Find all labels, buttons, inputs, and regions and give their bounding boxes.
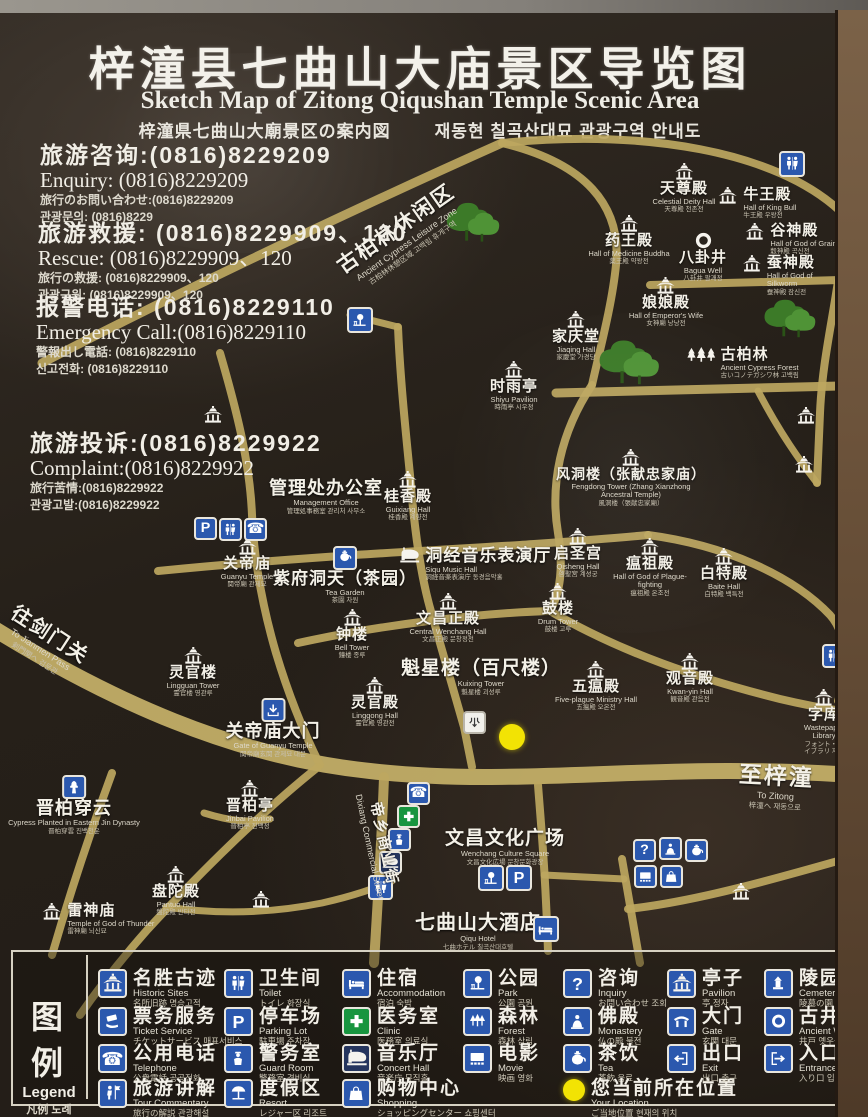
map-poi bbox=[249, 891, 272, 909]
temple-icon bbox=[238, 780, 261, 798]
map-poi: 文昌正殿Central Wenchang Hall文昌正殿 문창정전 bbox=[410, 593, 487, 644]
ring-icon bbox=[693, 231, 712, 250]
temple-icon bbox=[712, 548, 735, 566]
your-location-dot bbox=[499, 724, 525, 750]
clinic-icon bbox=[342, 1007, 371, 1036]
temple-icon bbox=[566, 528, 589, 546]
temple-icon bbox=[743, 223, 766, 241]
shopping-icon bbox=[342, 1079, 371, 1108]
temple-icon bbox=[584, 661, 607, 679]
bed-icon bbox=[533, 916, 559, 942]
map-poi: 八卦井Bagua Well八卦井 팔괘정 bbox=[679, 231, 727, 283]
contact-emergency: 报警电话: (0816)8229110 Emergency Call:(0816… bbox=[36, 295, 335, 377]
legend-item-clinic: 医务室Clinic医務室 의료실 bbox=[342, 1007, 440, 1047]
exit-icon bbox=[667, 1044, 696, 1073]
movie-icon bbox=[463, 1044, 492, 1073]
cypress-trees-icon bbox=[592, 335, 662, 385]
map-poi: 钟楼Bell Tower鐘楼 종루 bbox=[335, 609, 369, 660]
wc-icon bbox=[219, 518, 242, 541]
temple-icon bbox=[40, 903, 63, 921]
legend-item-temple: 亭子Pavilion亭 정자 bbox=[667, 969, 744, 1009]
wc-icon bbox=[224, 969, 253, 998]
map-poi: 魁星楼（百尺楼）Kuixing Tower魁星楼 괴성루 bbox=[401, 659, 561, 696]
map-poi bbox=[201, 406, 224, 424]
map-poi: 启圣宫Qisheng Hall啓聖宮 계성궁 bbox=[554, 528, 602, 579]
photo-frame-right bbox=[835, 10, 868, 1117]
temple-icon bbox=[436, 593, 459, 611]
temple-icon bbox=[678, 653, 701, 671]
movie-icon bbox=[634, 865, 657, 888]
legend-item-temple: 名胜古迹Historic Sites名所旧跡 명승고적 bbox=[98, 969, 217, 1009]
temple-icon bbox=[249, 891, 272, 909]
emergency-kr: 신고전화: (0816)8229110 bbox=[36, 361, 335, 377]
map-poi: 文昌文化广场Wenchang Culture Square文昌文化広場 문창문화… bbox=[445, 829, 565, 866]
map-poi: 娘娘殿Hall of Emperor's Wife女神廟 낭낭전 bbox=[629, 277, 703, 328]
legend-item-exit: 出口Exit出口 출구 bbox=[667, 1044, 744, 1084]
park-icon bbox=[463, 969, 492, 998]
temple-icon bbox=[638, 538, 661, 556]
legend-title-zh: 图 例 bbox=[13, 992, 85, 1084]
photo-frame-top bbox=[0, 0, 868, 13]
temple-icon bbox=[363, 677, 386, 695]
temple-icon bbox=[716, 187, 739, 205]
legend-item-question: ?咨询Inquiryお問い合わせ 조회 bbox=[563, 969, 667, 1009]
temple-icon bbox=[794, 407, 817, 425]
legend-item-tour: 旅游讲解Tour Commentary旅行の解説 관광해설 bbox=[98, 1079, 217, 1117]
map-poi: 洞经音乐表演厅Siqu Music Hall洞経音楽表演庁 동경음악홀 bbox=[398, 547, 551, 582]
bed-icon bbox=[342, 969, 371, 998]
map-poi: 雷神庙Temple of God of Thunder雷神廟 뇌신묘 bbox=[40, 903, 154, 936]
phone-icon: ☎ bbox=[98, 1044, 127, 1073]
parking-icon: P bbox=[506, 865, 532, 891]
temple-icon bbox=[654, 277, 677, 295]
guard-icon bbox=[224, 1044, 253, 1073]
forest-icon bbox=[463, 1007, 492, 1036]
map-poi: 牛王殿Hall of King Bull牛王殿 우왕전 bbox=[716, 187, 796, 220]
emergency-zh: 报警电话: (0816)8229110 bbox=[36, 295, 335, 320]
map-poi: 蚕神殿Hall of God of Silkworm蚕神殿 잠신전 bbox=[741, 255, 840, 296]
emergency-jp: 警報出し電話: (0816)8229110 bbox=[36, 344, 335, 360]
temple-icon bbox=[396, 471, 419, 489]
junction-icon bbox=[463, 711, 486, 734]
ticket-icon bbox=[98, 1007, 127, 1036]
contact-enquiry: 旅游咨询:(0816)8229209 Enquiry: (0816)822920… bbox=[40, 143, 332, 225]
temple-icon bbox=[546, 583, 569, 601]
park-icon bbox=[478, 865, 504, 891]
enquiry-jp: 旅行のお問い合わせ:(0816)8229209 bbox=[40, 192, 332, 208]
legend-item-bed: 住宿Accommodation宿泊 숙박 bbox=[342, 969, 445, 1009]
map-poi bbox=[729, 883, 752, 901]
map-poi: 药王殿Hall of Medicine Buddha薬王殿 약왕전 bbox=[588, 215, 669, 266]
legend-item-location: 您当前所在位置Your Locationご当地位置 현재의 위치 bbox=[563, 1079, 738, 1117]
cypress-icon bbox=[62, 775, 86, 799]
piano-icon bbox=[398, 547, 421, 565]
temple-icon bbox=[729, 883, 752, 901]
gate-icon bbox=[667, 1007, 696, 1036]
rescue-en: Rescue: (0816)8229909、120 bbox=[38, 246, 407, 270]
shopping-icon bbox=[660, 865, 683, 888]
enquiry-en: Enquiry: (0816)8229209 bbox=[40, 168, 332, 192]
contact-complaint: 旅游投诉:(0816)8229922 Complaint:(0816)82299… bbox=[30, 431, 322, 513]
phone-icon: ☎ bbox=[407, 782, 430, 805]
legend-item-entrance: 入口Entrance入り口 입구 bbox=[764, 1044, 843, 1084]
map-poi: 天尊殿Celestial Deity Hall天尊殿 천존전 bbox=[653, 163, 716, 214]
legend-item-buddha: 佛殿Monastery仏の殿 불전 bbox=[563, 1007, 642, 1047]
temple-icon bbox=[617, 215, 640, 233]
temple-icon bbox=[812, 689, 835, 707]
temple-icon bbox=[201, 406, 224, 424]
contact-rescue: 旅游救援: (0816)8229909、120 Rescue: (0816)82… bbox=[38, 221, 407, 303]
legend-item-forest: 森林Forest森林 삼림 bbox=[463, 1007, 540, 1047]
concert-icon bbox=[342, 1044, 371, 1073]
temple-icon bbox=[741, 255, 763, 273]
map-poi: 桂香殿Guixiang Hall桂香殿 계향전 bbox=[384, 471, 432, 522]
road-label: 至梓潼To Zitong梓潼へ 재동으로 bbox=[737, 755, 815, 814]
arrdown-icon bbox=[261, 698, 285, 722]
map-poi: 灵官殿Linggong Hall霊官殿 영관전 bbox=[351, 677, 399, 728]
rescue-zh: 旅游救援: (0816)8229909、120 bbox=[38, 221, 407, 246]
cemetery-icon bbox=[764, 969, 793, 998]
legend-title-jk: 凡例 도례 bbox=[13, 1101, 85, 1117]
legend-title-en: Legend bbox=[13, 1084, 85, 1101]
map-poi: 白特殿Baite Hall白特殿 백특전 bbox=[700, 548, 748, 599]
tea-icon bbox=[563, 1044, 592, 1073]
scenic-area-map-sign-photo: 梓潼县七曲山大庙景区导览图 Sketch Map of Zitong Qiqus… bbox=[0, 0, 868, 1117]
legend-title: 图 例 Legend 凡例 도례 bbox=[13, 992, 85, 1117]
map-poi: 时雨亭Shiyu Pavilion時雨亭 시우정 bbox=[490, 361, 538, 412]
map-poi: 五瘟殿Five-plague Ministry Hall五瘟殿 오온전 bbox=[555, 661, 637, 712]
cypress-trees-icon bbox=[758, 295, 818, 338]
buddha-icon bbox=[659, 837, 682, 860]
question-icon: ? bbox=[563, 969, 592, 998]
legend-item-resort: 度假区Resortレジャー区 리조트 bbox=[224, 1079, 327, 1117]
map-poi: 鼓楼Drum Tower鼓楼 고루 bbox=[538, 583, 578, 634]
parking-icon: P bbox=[224, 1007, 253, 1036]
temple-icon bbox=[502, 361, 525, 379]
temple-icon bbox=[667, 969, 696, 998]
entrance-icon bbox=[764, 1044, 793, 1073]
your-location-dot bbox=[563, 1079, 585, 1101]
map-sign-board: 梓潼县七曲山大庙景区导览图 Sketch Map of Zitong Qiqus… bbox=[0, 13, 840, 1117]
legend-item-wc: 卫生间Toiletトイレ 화장실 bbox=[224, 969, 322, 1009]
legend-item-parking: P停车场Parking Lot駐車場 주차장 bbox=[224, 1007, 322, 1047]
map-road bbox=[556, 385, 840, 393]
map-poi: 瘟祖殿Hall of God of Plague-fighting瘟祖殿 온조전 bbox=[606, 538, 694, 597]
legend-panel: 图 例 Legend 凡例 도례 名胜古迹Historic Sites名所旧跡 … bbox=[11, 950, 837, 1106]
map-poi: 关帝庙大门Gate of Guanyu Temple関帝廟玄関 관제묘 대문 bbox=[226, 698, 321, 758]
park-icon bbox=[347, 307, 373, 333]
resort-icon bbox=[224, 1079, 253, 1108]
map-poi: 灵官楼Lingguan Tower霊官楼 영관루 bbox=[167, 647, 220, 698]
question-icon: ? bbox=[633, 839, 656, 862]
emergency-en: Emergency Call:(0816)8229110 bbox=[36, 320, 335, 344]
complaint-en: Complaint:(0816)8229922 bbox=[30, 456, 322, 480]
wc-icon bbox=[779, 151, 805, 177]
map-poi: 观音殿Kwan-yin Hall観音殿 관음전 bbox=[666, 653, 714, 704]
complaint-jp: 旅行苦情:(0816)8229922 bbox=[30, 480, 322, 496]
tea-icon bbox=[685, 839, 708, 862]
map-poi bbox=[794, 407, 817, 425]
map-poi: 紫府洞天（茶园）Tea Garden茶園 차원 bbox=[273, 546, 417, 605]
map-poi: 盘陀殿Pantuo Hall盤陀殿 반타전 bbox=[152, 866, 200, 917]
trees3-icon bbox=[686, 347, 717, 365]
temple-icon bbox=[164, 866, 187, 884]
map-poi: 古柏林Ancient Cypress Forest古いコノテガシワ林 고백림 bbox=[686, 347, 799, 380]
buddha-icon bbox=[563, 1007, 592, 1036]
map-poi: 风洞楼（张献忠家庙）Fengdong Tower (Zhang Xianzhon… bbox=[556, 449, 706, 507]
map-poi: 晋柏亭Jinbai Pavilion晋柏亭 진백정 bbox=[226, 780, 274, 831]
enquiry-zh: 旅游咨询:(0816)8229209 bbox=[40, 143, 332, 168]
complaint-kr: 관광고발:(0816)8229922 bbox=[30, 497, 322, 513]
clinic-icon bbox=[397, 805, 420, 828]
tour-icon bbox=[98, 1079, 127, 1108]
map-poi: 晋柏穿云Cypress Planted in Eastern Jin Dynas… bbox=[8, 775, 140, 835]
temple-icon bbox=[619, 449, 642, 467]
legend-item-park: 公园Park公園 공원 bbox=[463, 969, 540, 1009]
temple-icon bbox=[564, 311, 587, 329]
legend-item-shopping: 购物中心Shoppingショッピングセンター 쇼핑센터 bbox=[342, 1079, 496, 1117]
teabox-icon bbox=[333, 546, 357, 570]
complaint-zh: 旅游投诉:(0816)8229922 bbox=[30, 431, 322, 456]
map-poi: 谷神殿Hall of God of Grain穀神殿 곡신전 bbox=[743, 223, 837, 256]
temple-icon bbox=[340, 609, 363, 627]
map-poi: 关帝庙Guanyu Temple関帝廟 관제묘 bbox=[221, 538, 273, 589]
map-road bbox=[544, 875, 624, 879]
rescue-jp: 旅行の救援: (0816)8229909、120 bbox=[38, 270, 407, 286]
phone-icon: ☎ bbox=[244, 518, 267, 541]
legend-item-movie: 电影Movie映画 영화 bbox=[463, 1044, 540, 1084]
temple-icon bbox=[672, 163, 695, 181]
temple-icon bbox=[181, 647, 204, 665]
temple-icon bbox=[792, 456, 815, 474]
well-icon bbox=[764, 1007, 793, 1036]
map-poi bbox=[792, 456, 815, 474]
map-poi: 七曲山大酒店Qiqu Hotel七曲ホテル 칠곡산대호텔 bbox=[415, 913, 541, 951]
legend-divider bbox=[86, 955, 88, 1099]
temple-icon bbox=[98, 969, 127, 998]
legend-item-gate: 大门Gate玄関 대문 bbox=[667, 1007, 744, 1047]
parking-icon: P bbox=[194, 517, 217, 540]
map-poi: 家庆堂Jiaqing Hall家慶堂 가경당 bbox=[552, 311, 600, 362]
legend-item-ticket: 票务服务Ticket Serviceチケットサービス 매표서비스 bbox=[98, 1007, 242, 1047]
